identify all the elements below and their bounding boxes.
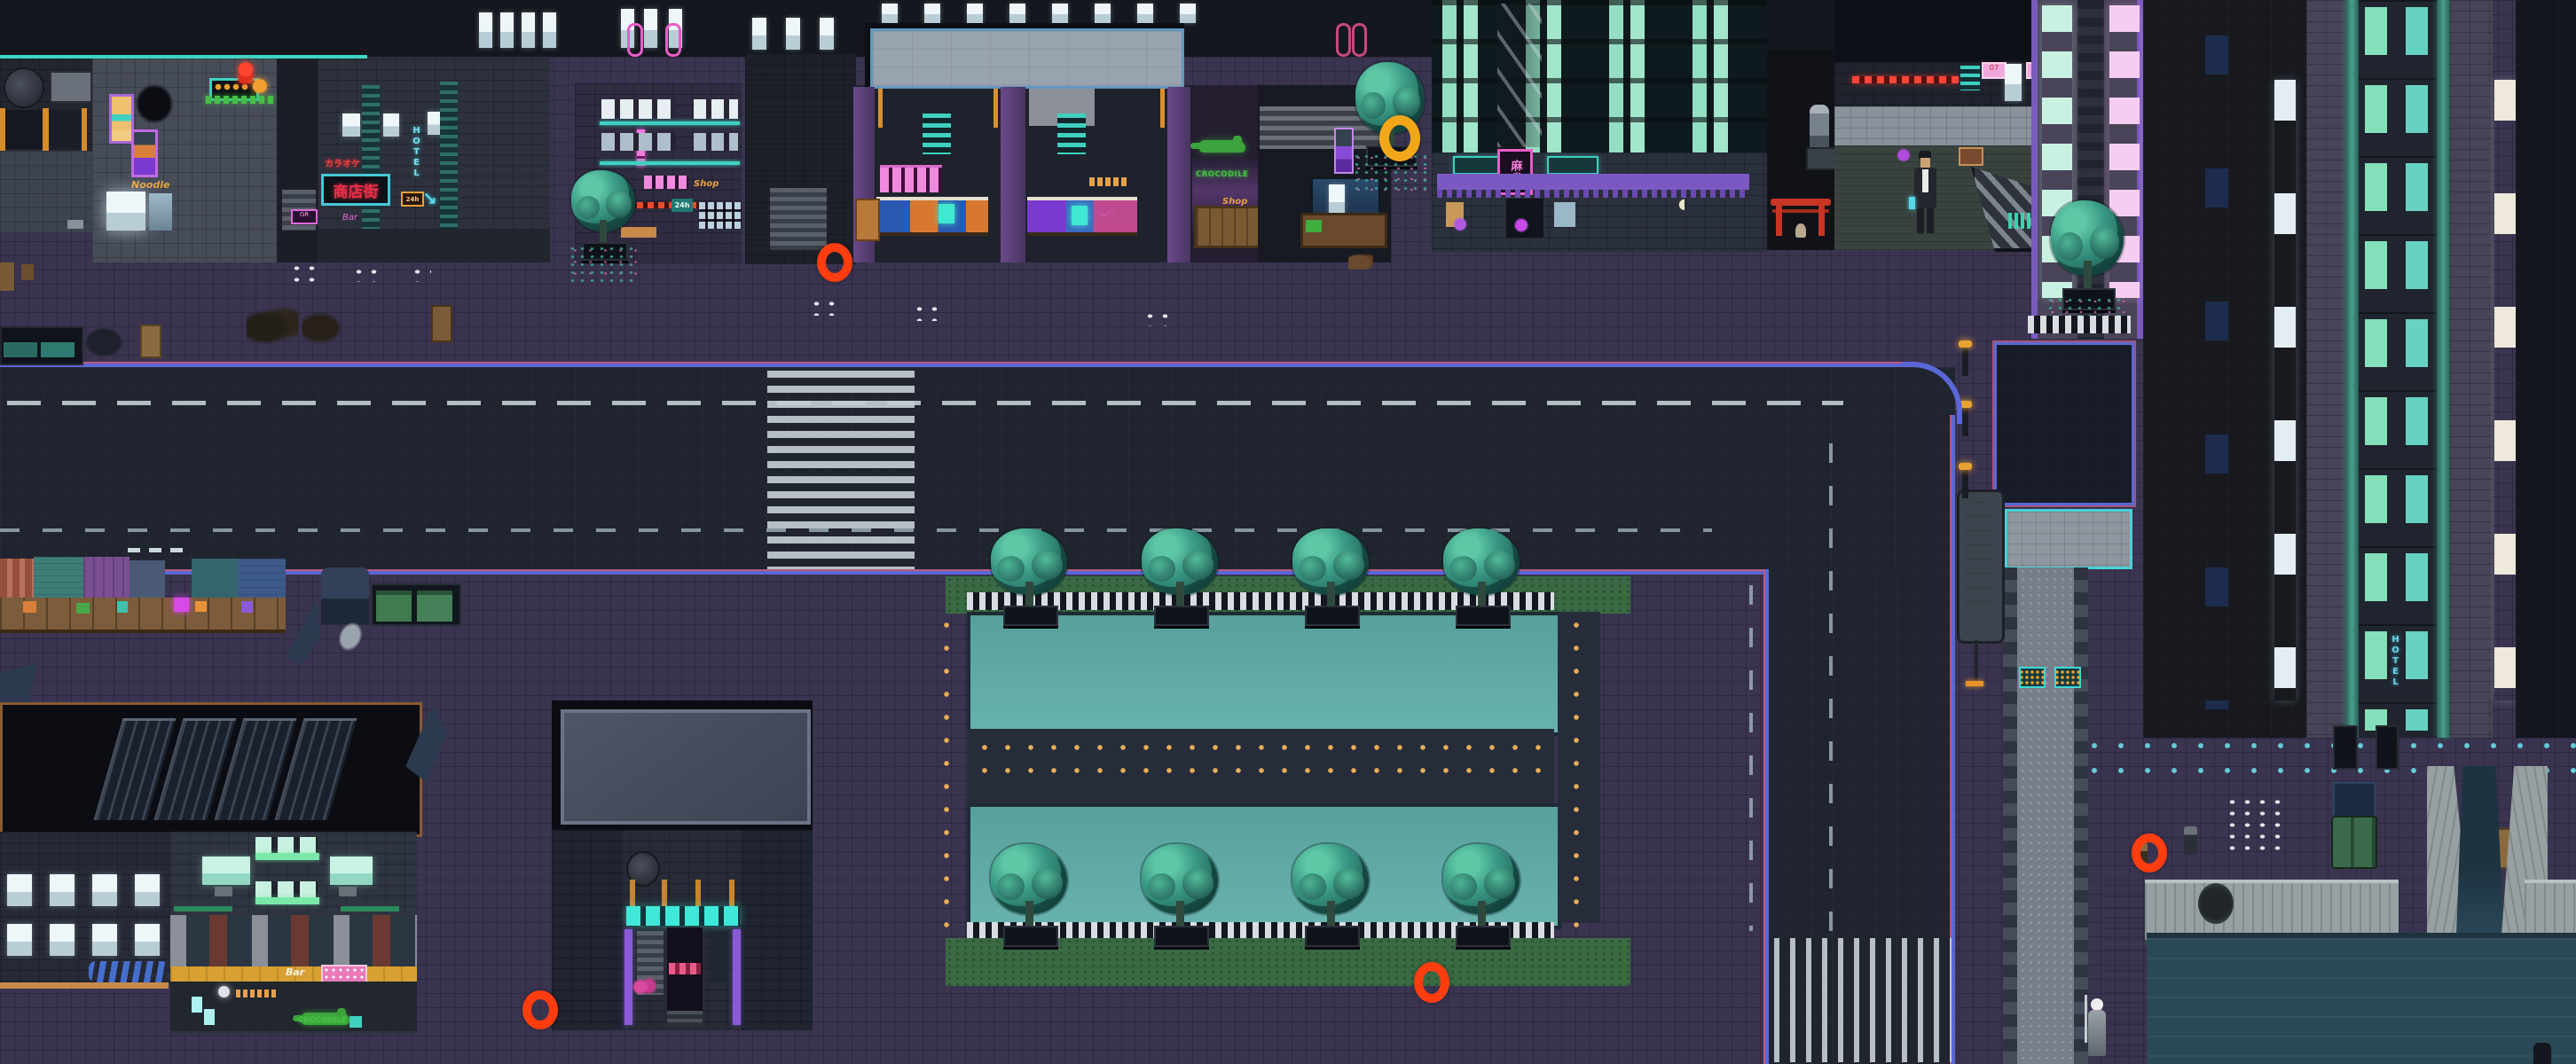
markers-layer <box>0 0 2576 1064</box>
marker-red-canal[interactable] <box>2132 833 2167 872</box>
city-map: Noodle GR カラオケ 商店街 HOTEL 24h ↘ Bar Shop … <box>0 0 2576 1064</box>
marker-red-street[interactable] <box>817 243 852 282</box>
marker-orange-tree[interactable] <box>1379 115 1420 161</box>
marker-red-plaza[interactable] <box>1414 962 1449 1003</box>
marker-red-shopfront[interactable] <box>522 990 558 1029</box>
